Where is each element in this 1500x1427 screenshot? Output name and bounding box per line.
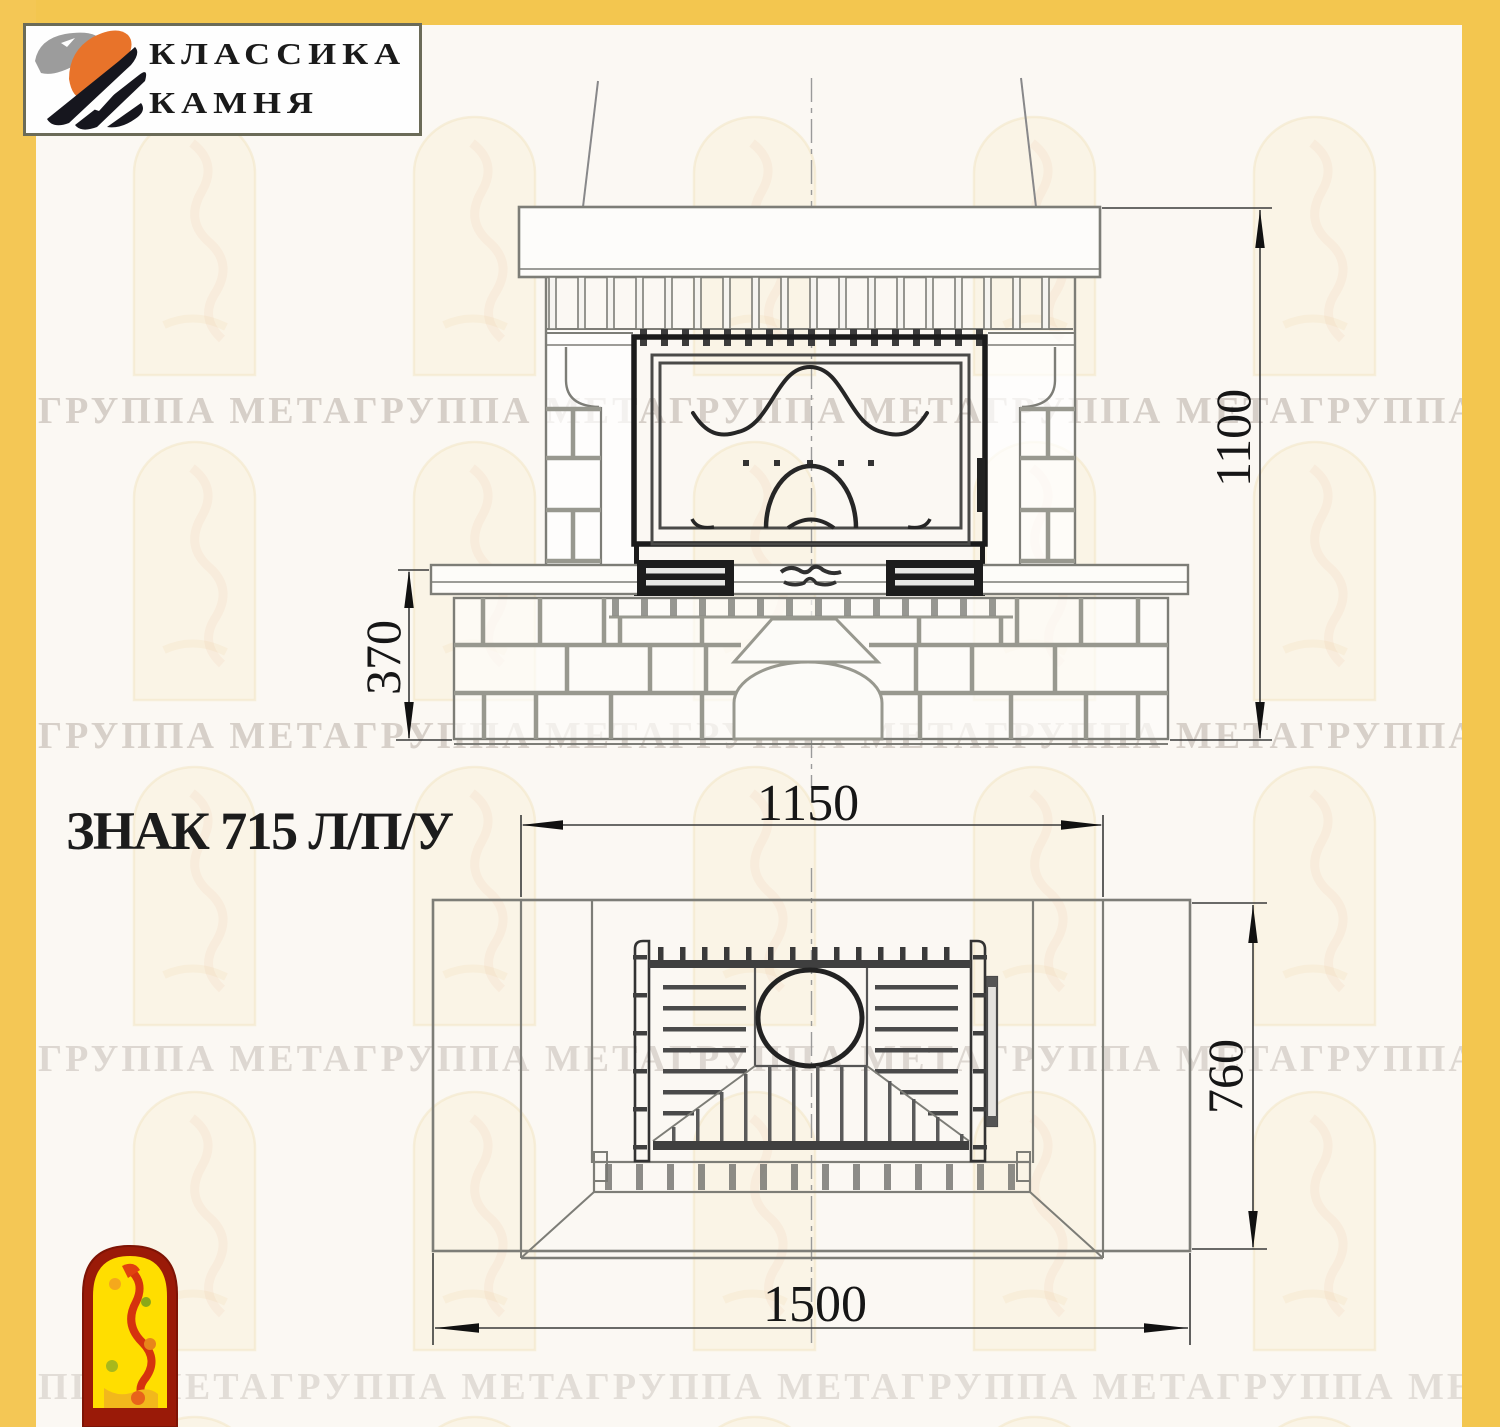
- svg-text:ЗНАК 715 Л/П/У: ЗНАК 715 Л/П/У: [66, 801, 454, 861]
- svg-text:370: 370: [355, 620, 411, 695]
- svg-text:1150: 1150: [757, 775, 859, 832]
- svg-text:1100: 1100: [1205, 389, 1261, 487]
- svg-text:1500: 1500: [763, 1276, 867, 1333]
- svg-text:760: 760: [1197, 1039, 1253, 1114]
